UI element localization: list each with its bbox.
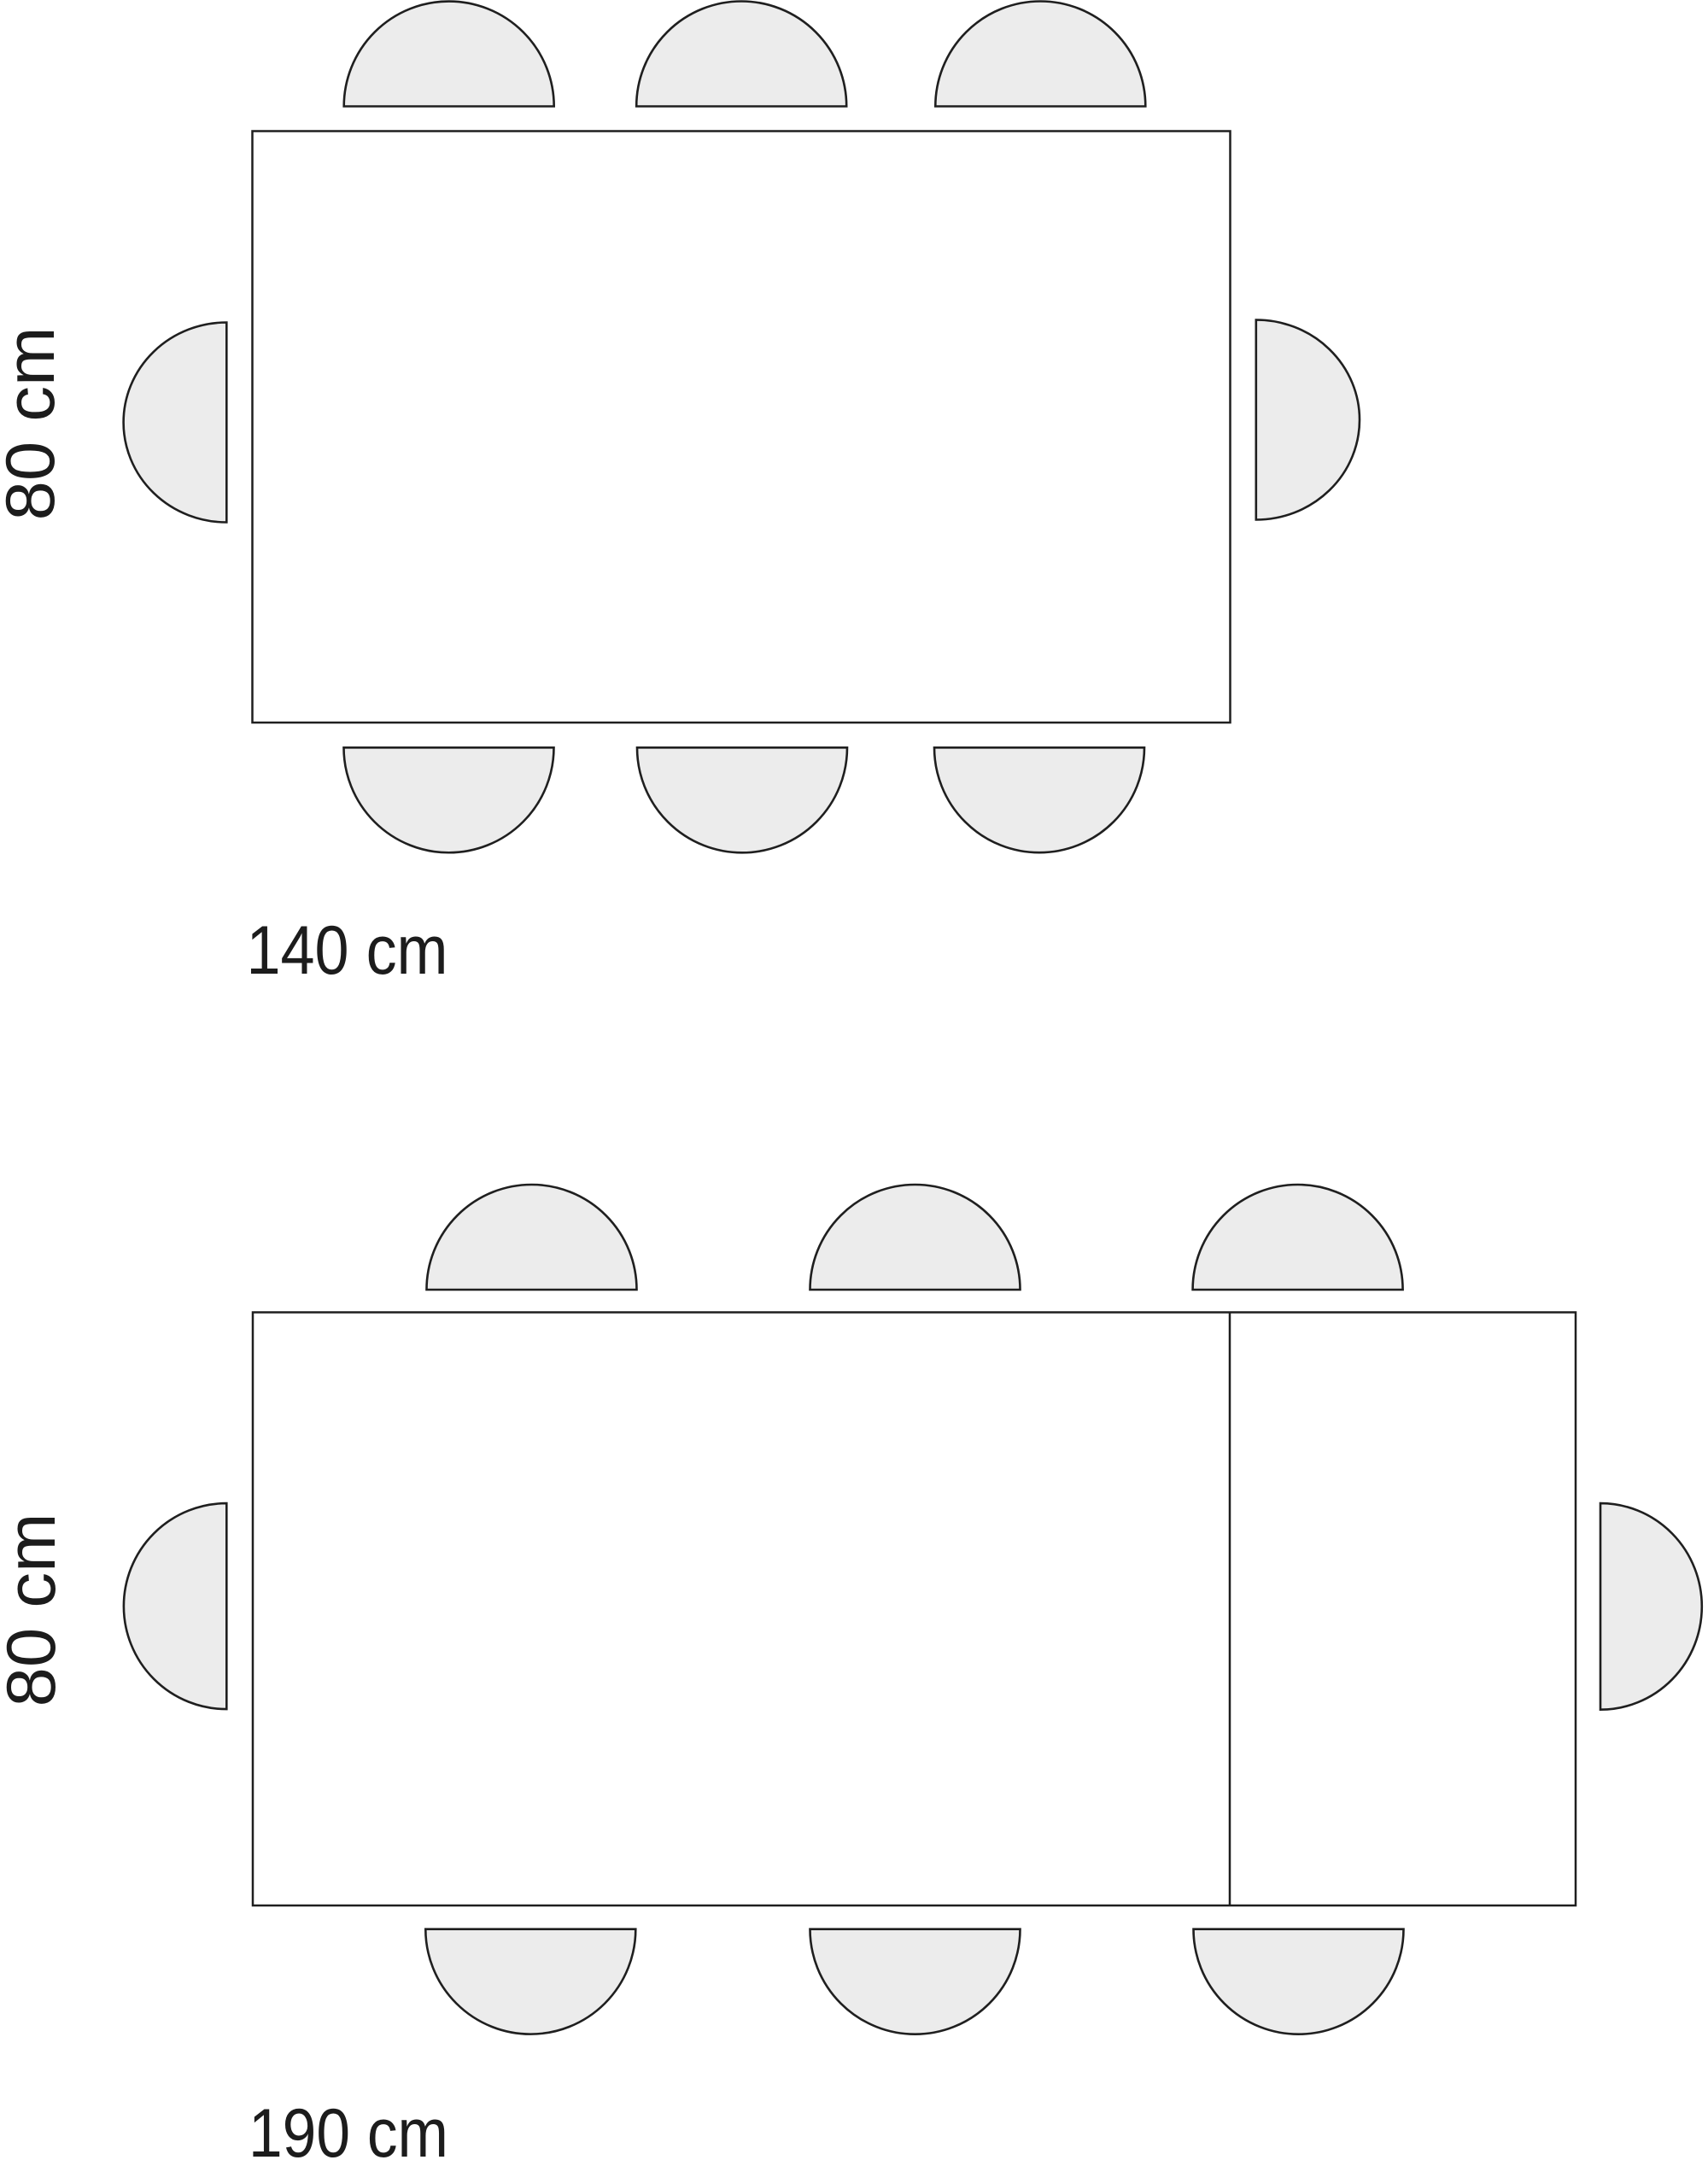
svg-text:80 cm: 80 cm <box>0 327 69 521</box>
svg-text:80 cm: 80 cm <box>0 1513 70 1707</box>
svg-text:190 cm: 190 cm <box>249 2095 448 2160</box>
svg-text:140 cm: 140 cm <box>247 912 448 989</box>
